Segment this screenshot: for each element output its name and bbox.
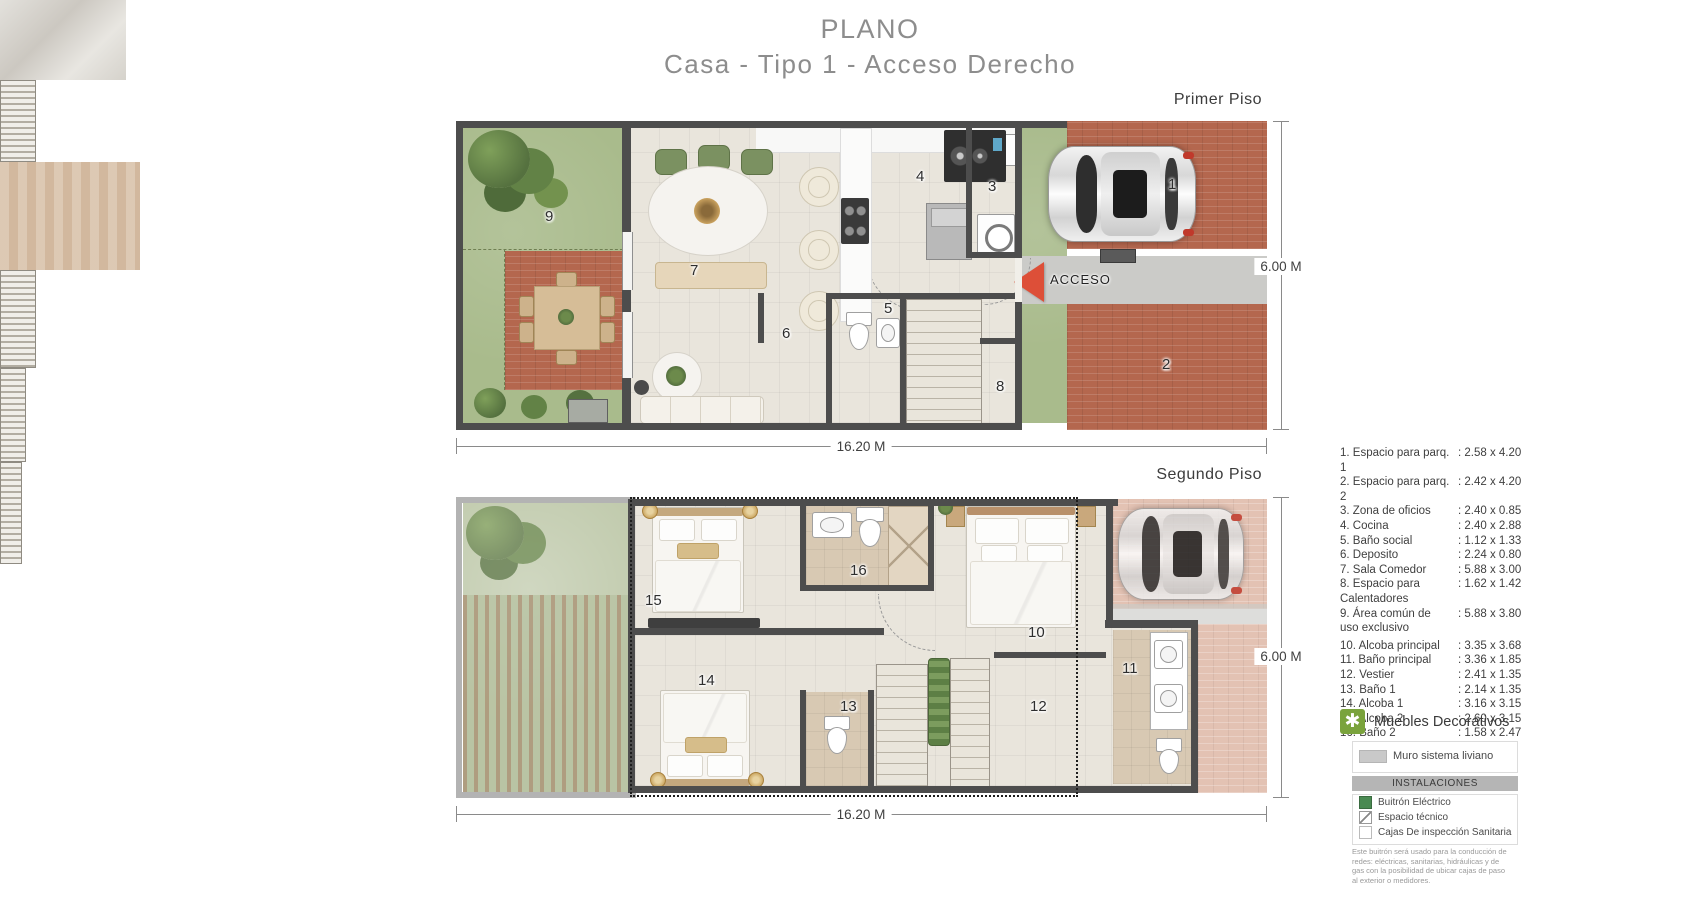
dimension-tick xyxy=(1273,429,1289,430)
staircase xyxy=(906,299,982,425)
wall-legend-box: Muro sistema liviano xyxy=(1352,741,1518,773)
instalaciones-legend-box: Buitrón Eléctrico Espacio técnico Cajas … xyxy=(1352,794,1518,845)
dimension-tick xyxy=(456,806,457,822)
legend-item: 8. Espacio para: 1.62 x 1.42Calentadores xyxy=(1340,577,1540,606)
car-sunroof xyxy=(1113,170,1147,218)
wall xyxy=(980,338,1022,344)
legend-item: 12. Vestier: 2.41 x 1.35 xyxy=(1340,668,1540,683)
floor1-gate-block xyxy=(1100,249,1136,263)
legend-item: 7. Sala Comedor: 5.88 x 3.00 xyxy=(1340,563,1540,578)
window xyxy=(622,312,633,378)
espacio-tecnico-swatch xyxy=(1359,811,1372,824)
sink-icon xyxy=(1154,640,1183,669)
legend-row-buitron: Buitrón Eléctrico xyxy=(1353,795,1517,810)
wall xyxy=(966,128,972,258)
wall xyxy=(456,121,463,430)
room-number-10: 10 xyxy=(1028,624,1045,641)
legend-item: 10. Alcoba principal: 3.35 x 3.68 xyxy=(1340,639,1540,654)
muebles-label: Muebles Decorativos xyxy=(1374,714,1509,730)
car-rear-window xyxy=(1165,158,1178,231)
room-number-2: 2 xyxy=(1162,356,1170,373)
car-taillight xyxy=(1231,514,1242,521)
wall xyxy=(456,792,636,798)
dimension-tick xyxy=(1273,797,1289,798)
legend-item: 4. Cocina: 2.40 x 2.88 xyxy=(1340,519,1540,534)
coffee-table-plant xyxy=(666,366,686,386)
acceso-label: ACCESO xyxy=(1050,272,1111,287)
patio-plant xyxy=(558,309,574,325)
nightstand xyxy=(1077,506,1096,527)
room-number-7: 7 xyxy=(690,262,698,279)
dining-bench xyxy=(655,262,767,289)
wall xyxy=(826,293,832,430)
title-line2: Casa - Tipo 1 - Acceso Derecho xyxy=(440,49,1300,80)
floor1-label: Primer Piso xyxy=(1174,91,1262,109)
floor1-garden-dashed-line xyxy=(504,249,505,390)
tree-icon xyxy=(466,506,524,560)
stove-icon xyxy=(841,198,869,244)
car-floor2 xyxy=(1118,508,1244,600)
car-rear-window xyxy=(1218,519,1229,589)
wall xyxy=(826,293,1016,299)
patio-chair xyxy=(519,322,534,343)
dimension-tick xyxy=(1273,121,1289,122)
laundry-sink-basin xyxy=(993,138,1002,151)
floor2-pergola-deck xyxy=(463,595,628,793)
room-number-1: 1 xyxy=(1168,176,1176,193)
room-number-8: 8 xyxy=(996,378,1004,395)
wall xyxy=(966,252,1022,258)
dimension-tick xyxy=(1273,497,1289,498)
floor1-garden-dashed-line xyxy=(463,249,628,250)
car-taillight xyxy=(1183,229,1194,236)
bar-stool xyxy=(799,230,839,270)
floor2-dotted-boundary xyxy=(630,497,1078,797)
window xyxy=(622,232,633,290)
sheet-title: PLANO Casa - Tipo 1 - Acceso Derecho xyxy=(440,14,1300,80)
muro-label: Muro sistema liviano xyxy=(1393,750,1493,762)
car-taillight xyxy=(1183,152,1194,159)
legend-item: 6. Deposito: 2.24 x 0.80 xyxy=(1340,548,1540,563)
floor-lamp xyxy=(634,380,649,395)
wall xyxy=(1106,499,1113,624)
room-number-12: 12 xyxy=(1030,698,1047,715)
sink-icon xyxy=(876,318,900,348)
instalaciones-header: INSTALACIONES xyxy=(1352,776,1518,791)
equipment-pad xyxy=(568,399,608,423)
tree-icon xyxy=(474,388,506,418)
car-taillight xyxy=(1231,587,1242,594)
muebles-decorativos-row: ✱ Muebles Decorativos xyxy=(1340,709,1509,734)
bar-stool xyxy=(799,167,839,207)
sofa xyxy=(640,396,764,424)
toilet-icon xyxy=(846,312,872,350)
muro-swatch xyxy=(1359,750,1387,763)
dimension-tick xyxy=(1266,438,1267,454)
dimension-tick xyxy=(456,438,457,454)
patio-chair xyxy=(600,296,615,317)
patio-chair xyxy=(519,296,534,317)
legend-row-cajas: Cajas De inspección Sanitaria xyxy=(1353,825,1517,840)
legend-item: 3. Zona de oficios: 2.40 x 0.85 xyxy=(1340,504,1540,519)
car-sunroof xyxy=(1173,531,1202,577)
legend-item: 1. Espacio para parq. 1: 2.58 x 4.20 xyxy=(1340,446,1540,475)
room-number-15: 15 xyxy=(645,592,662,609)
legend-item: 9. Área común de: 5.88 x 3.80uso exclusi… xyxy=(1340,607,1540,636)
floor2-width-dimension: 16.20 M xyxy=(831,806,892,823)
closet xyxy=(0,368,26,462)
room-number-11: 11 xyxy=(1122,660,1138,677)
table-centerpiece xyxy=(694,198,720,224)
room-number-4: 4 xyxy=(916,168,924,185)
floor1-height-dimension: 6.00 M xyxy=(1254,258,1307,275)
legend-item: 13. Baño 1: 2.14 x 1.35 xyxy=(1340,683,1540,698)
buitron-electrico-swatch xyxy=(1359,796,1372,809)
closet xyxy=(0,462,22,564)
room-number-13: 13 xyxy=(840,698,857,715)
floor2-height-dimension: 6.00 M xyxy=(1254,648,1307,665)
entry-door-gap xyxy=(1015,258,1022,302)
dimension-line xyxy=(1281,121,1282,430)
wall xyxy=(456,497,636,503)
room-number-3: 3 xyxy=(988,178,996,195)
bedroom-rug xyxy=(0,162,140,270)
dining-chair xyxy=(741,149,773,175)
living-rug xyxy=(0,0,126,80)
car-floor1 xyxy=(1048,146,1196,242)
cajas-inspeccion-swatch xyxy=(1359,826,1372,839)
floor1-width-dimension: 16.20 M xyxy=(831,438,892,455)
sink-icon xyxy=(1154,684,1183,713)
closet xyxy=(0,270,36,368)
room-number-5: 5 xyxy=(884,300,892,317)
legend-row-espacio-tecnico: Espacio técnico xyxy=(1353,810,1517,825)
car-windshield xyxy=(1076,155,1097,234)
room-number-6: 6 xyxy=(782,325,790,342)
washing-machine-icon xyxy=(977,214,1015,256)
car-windshield xyxy=(1142,516,1160,591)
wall xyxy=(1191,620,1198,793)
room-number-9: 9 xyxy=(545,208,553,225)
room-number-16: 16 xyxy=(850,562,867,579)
patio-chair xyxy=(556,350,577,365)
wall xyxy=(1105,620,1198,628)
toilet-icon xyxy=(1156,738,1182,774)
room-legend-list: 1. Espacio para parq. 1: 2.58 x 4.20 2. … xyxy=(1340,446,1540,741)
patio-chair xyxy=(556,272,577,287)
room-number-14: 14 xyxy=(698,672,715,689)
instalaciones-note: Este buitrón será usado para la conducci… xyxy=(1352,847,1512,885)
title-line1: PLANO xyxy=(440,14,1300,45)
floor-plan-sheet: PLANO Casa - Tipo 1 - Acceso Derecho Pri… xyxy=(0,0,1701,900)
closet xyxy=(0,80,36,162)
wall xyxy=(456,423,1022,430)
wall xyxy=(758,293,764,343)
wall xyxy=(900,293,906,430)
legend-item: 2. Espacio para parq. 2: 2.42 x 4.20 xyxy=(1340,475,1540,504)
asterisk-icon: ✱ xyxy=(1340,709,1365,734)
dimension-tick xyxy=(1266,806,1267,822)
wall xyxy=(456,121,1067,128)
patio-chair xyxy=(600,322,615,343)
wall xyxy=(456,497,462,798)
floor2-label: Segundo Piso xyxy=(1156,466,1262,484)
tree-icon xyxy=(468,130,530,188)
legend-item: 11. Baño principal: 3.36 x 1.85 xyxy=(1340,653,1540,668)
legend-item: 5. Baño social: 1.12 x 1.33 xyxy=(1340,534,1540,549)
